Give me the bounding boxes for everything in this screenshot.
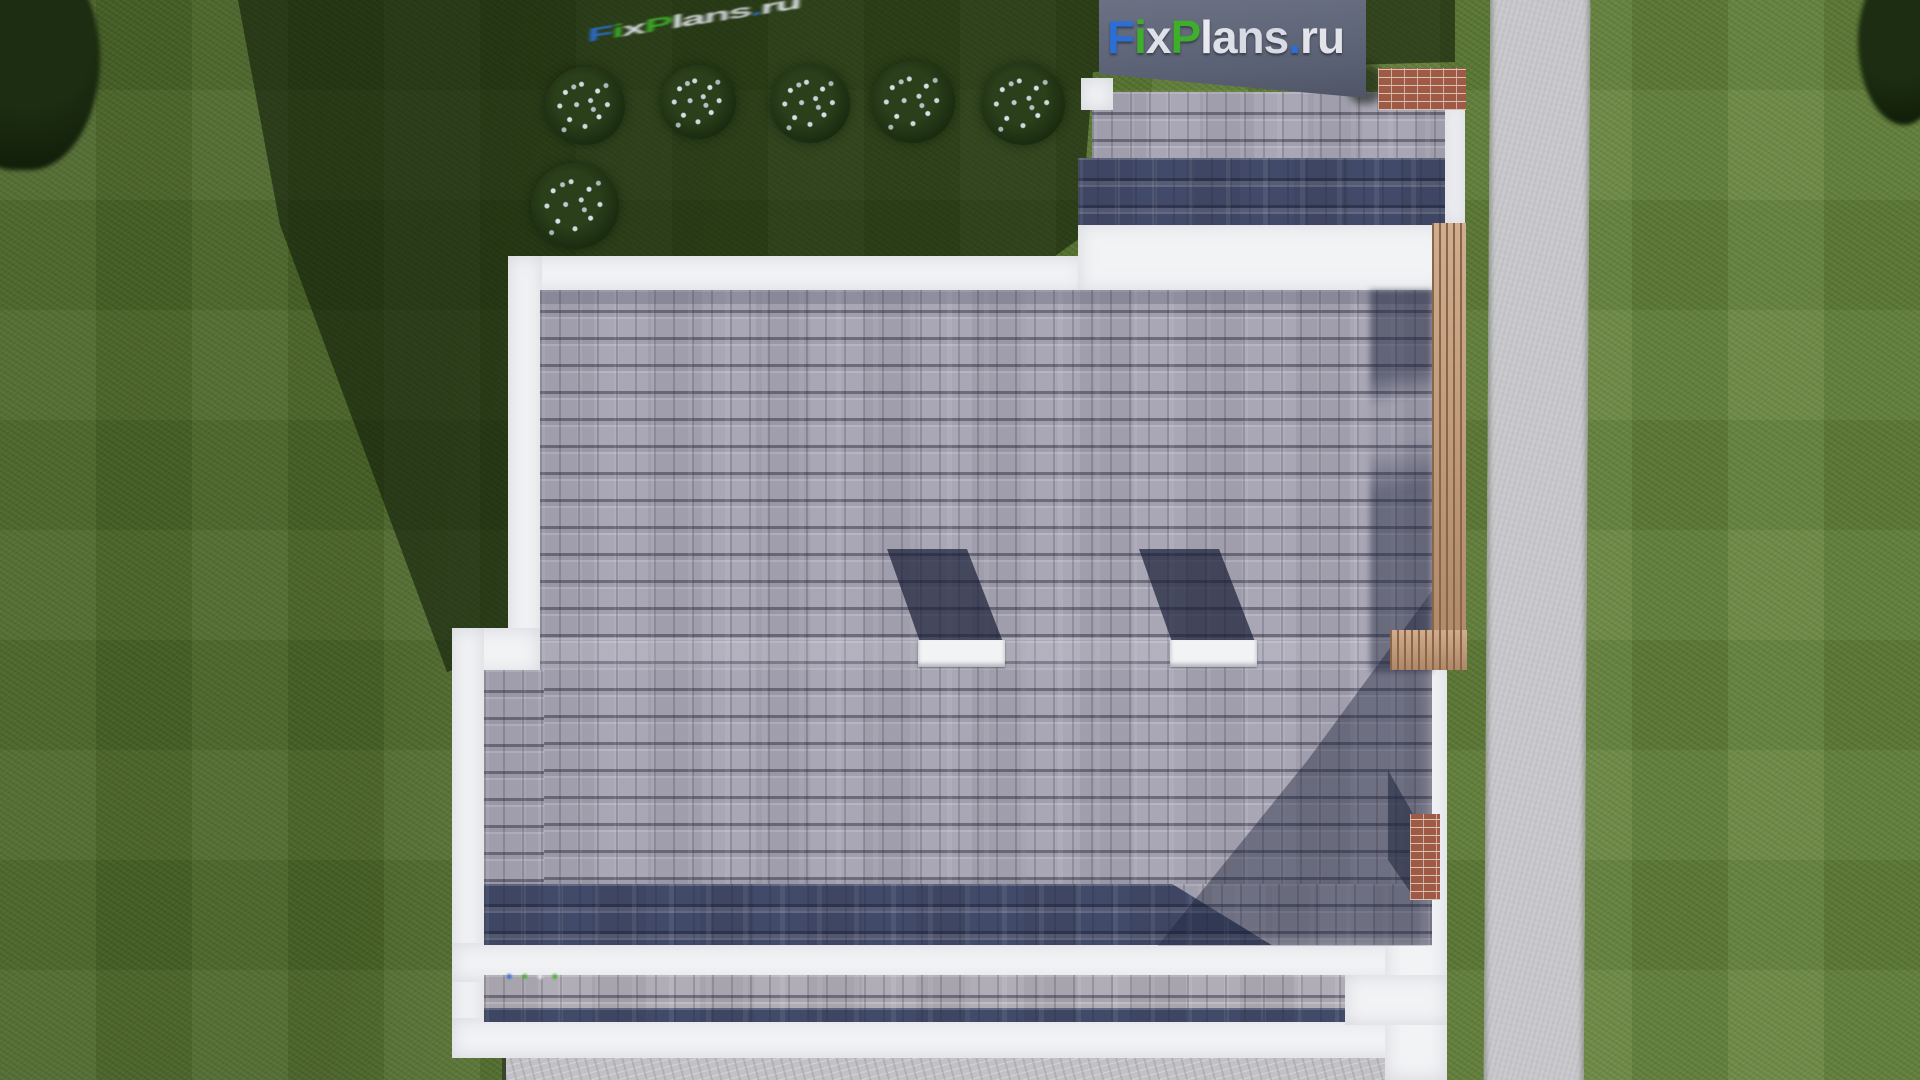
watermark-letter: s [728, 0, 751, 24]
upper-roof-shadow-band [1078, 158, 1447, 225]
watermark-letter: a [1212, 11, 1237, 63]
roof-fascia-left-lower [452, 628, 484, 1058]
watermark-letter: u [775, 0, 801, 16]
watermark-letter: x [1146, 11, 1171, 63]
lower-roof-strip-shadow-lip [484, 1008, 1345, 1022]
main-roof-shingles-left-wing [484, 670, 544, 886]
shrub [981, 63, 1065, 145]
brick-chimney-side [1410, 814, 1440, 900]
roof-window-cap [1170, 640, 1257, 667]
lower-roof-strip-shingles [484, 975, 1345, 1012]
upper-roof-fascia-right [1445, 100, 1465, 228]
shrub [545, 67, 625, 145]
roof-fascia-top [508, 256, 1085, 292]
watermark-letter: r [1300, 11, 1317, 63]
watermark-letter: F [587, 22, 613, 46]
watermark-letter: P [1170, 11, 1200, 63]
roof-fascia-lower-band [452, 1018, 1447, 1058]
watermark-letter: i [1134, 11, 1146, 63]
roof-fascia-right-fill [1345, 975, 1447, 1025]
watermark-letter: n [703, 4, 729, 28]
roof-fascia-left-upper [508, 256, 542, 652]
watermark-letter: P [644, 13, 672, 37]
roof-fascia-top-right [1078, 223, 1447, 292]
wood-deck-strip [1432, 223, 1466, 670]
fixplans-logo-text: FixPlans.ru [1107, 10, 1344, 64]
watermark-letter: F [1107, 11, 1134, 63]
watermark-letter: u [1317, 11, 1344, 63]
watermark-letter: l [1200, 11, 1212, 63]
shrub [770, 65, 850, 143]
upper-roof-fascia-corner [1081, 78, 1113, 110]
fascia-watermark-specks [502, 972, 562, 981]
watermark-letter: s [1264, 11, 1289, 63]
aerial-roof-render: FixPlans.ru FixPl [0, 0, 1920, 1080]
sidewalk-path [1484, 0, 1591, 1080]
shrub [871, 61, 955, 143]
main-roof-shingles [540, 290, 1432, 886]
watermark-letter: a [681, 8, 704, 32]
watermark-letter: n [1237, 11, 1264, 63]
shrub [660, 65, 736, 139]
watermark-letter: . [1288, 11, 1300, 63]
roof-window-cap [918, 640, 1005, 667]
watermark-letter: x [622, 17, 645, 41]
brick-chimney-top [1378, 68, 1466, 110]
shrub [531, 163, 619, 249]
wood-deck-corner [1390, 630, 1467, 670]
